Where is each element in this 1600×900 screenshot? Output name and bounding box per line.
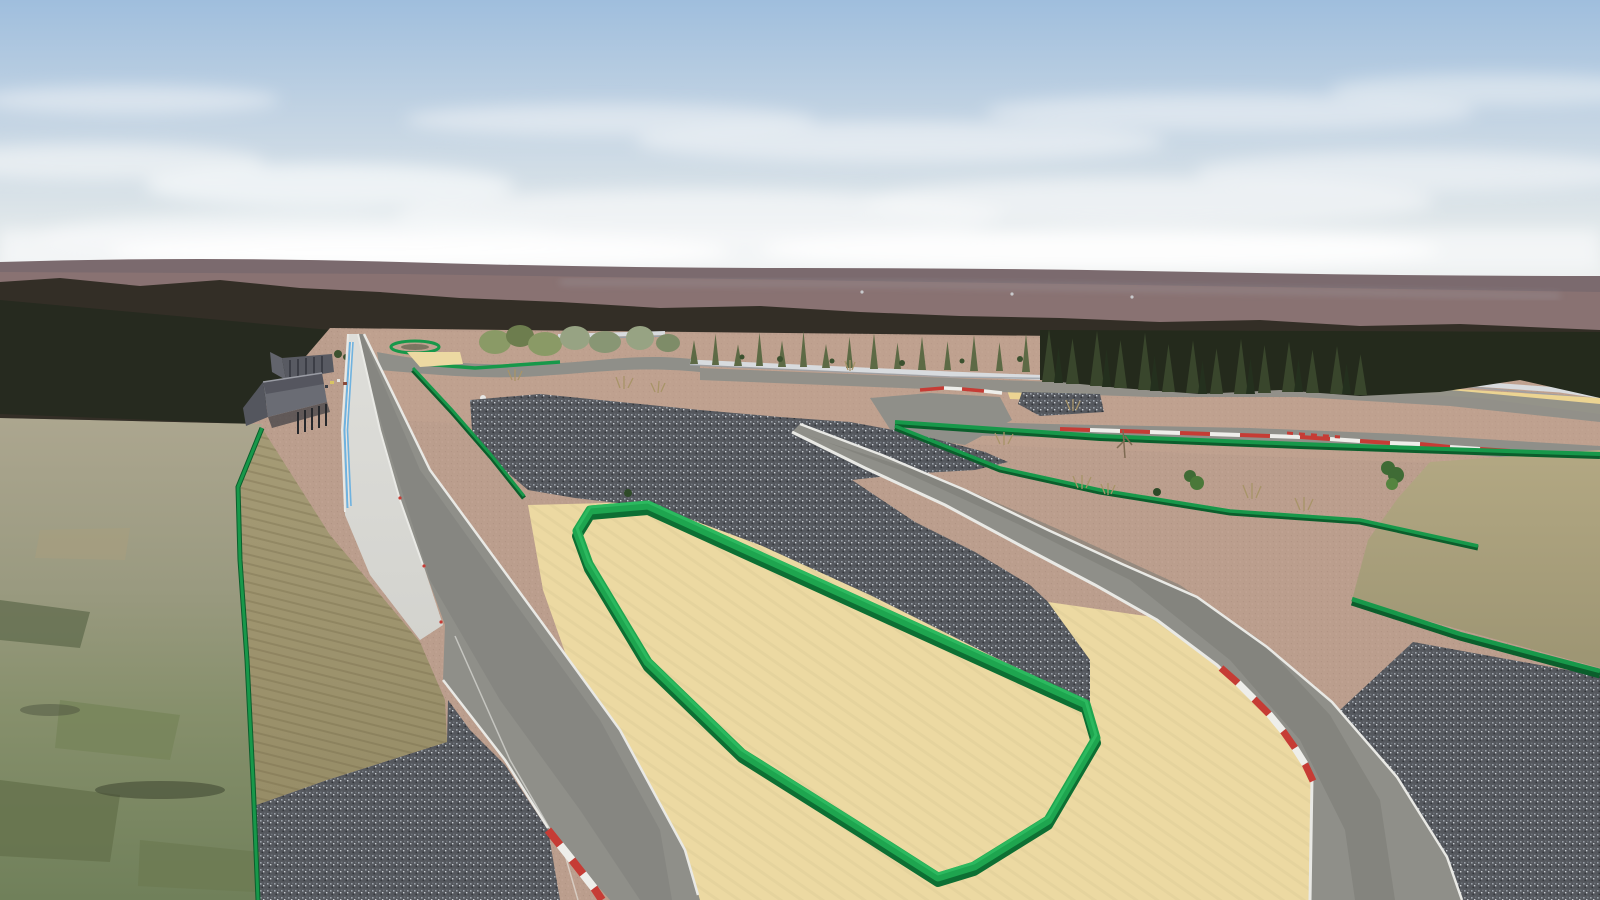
track-scene xyxy=(0,0,1600,900)
aerial-photo-terrain xyxy=(0,418,262,900)
sky xyxy=(0,0,1600,286)
sim-3d-viewport[interactable] xyxy=(0,0,1600,900)
